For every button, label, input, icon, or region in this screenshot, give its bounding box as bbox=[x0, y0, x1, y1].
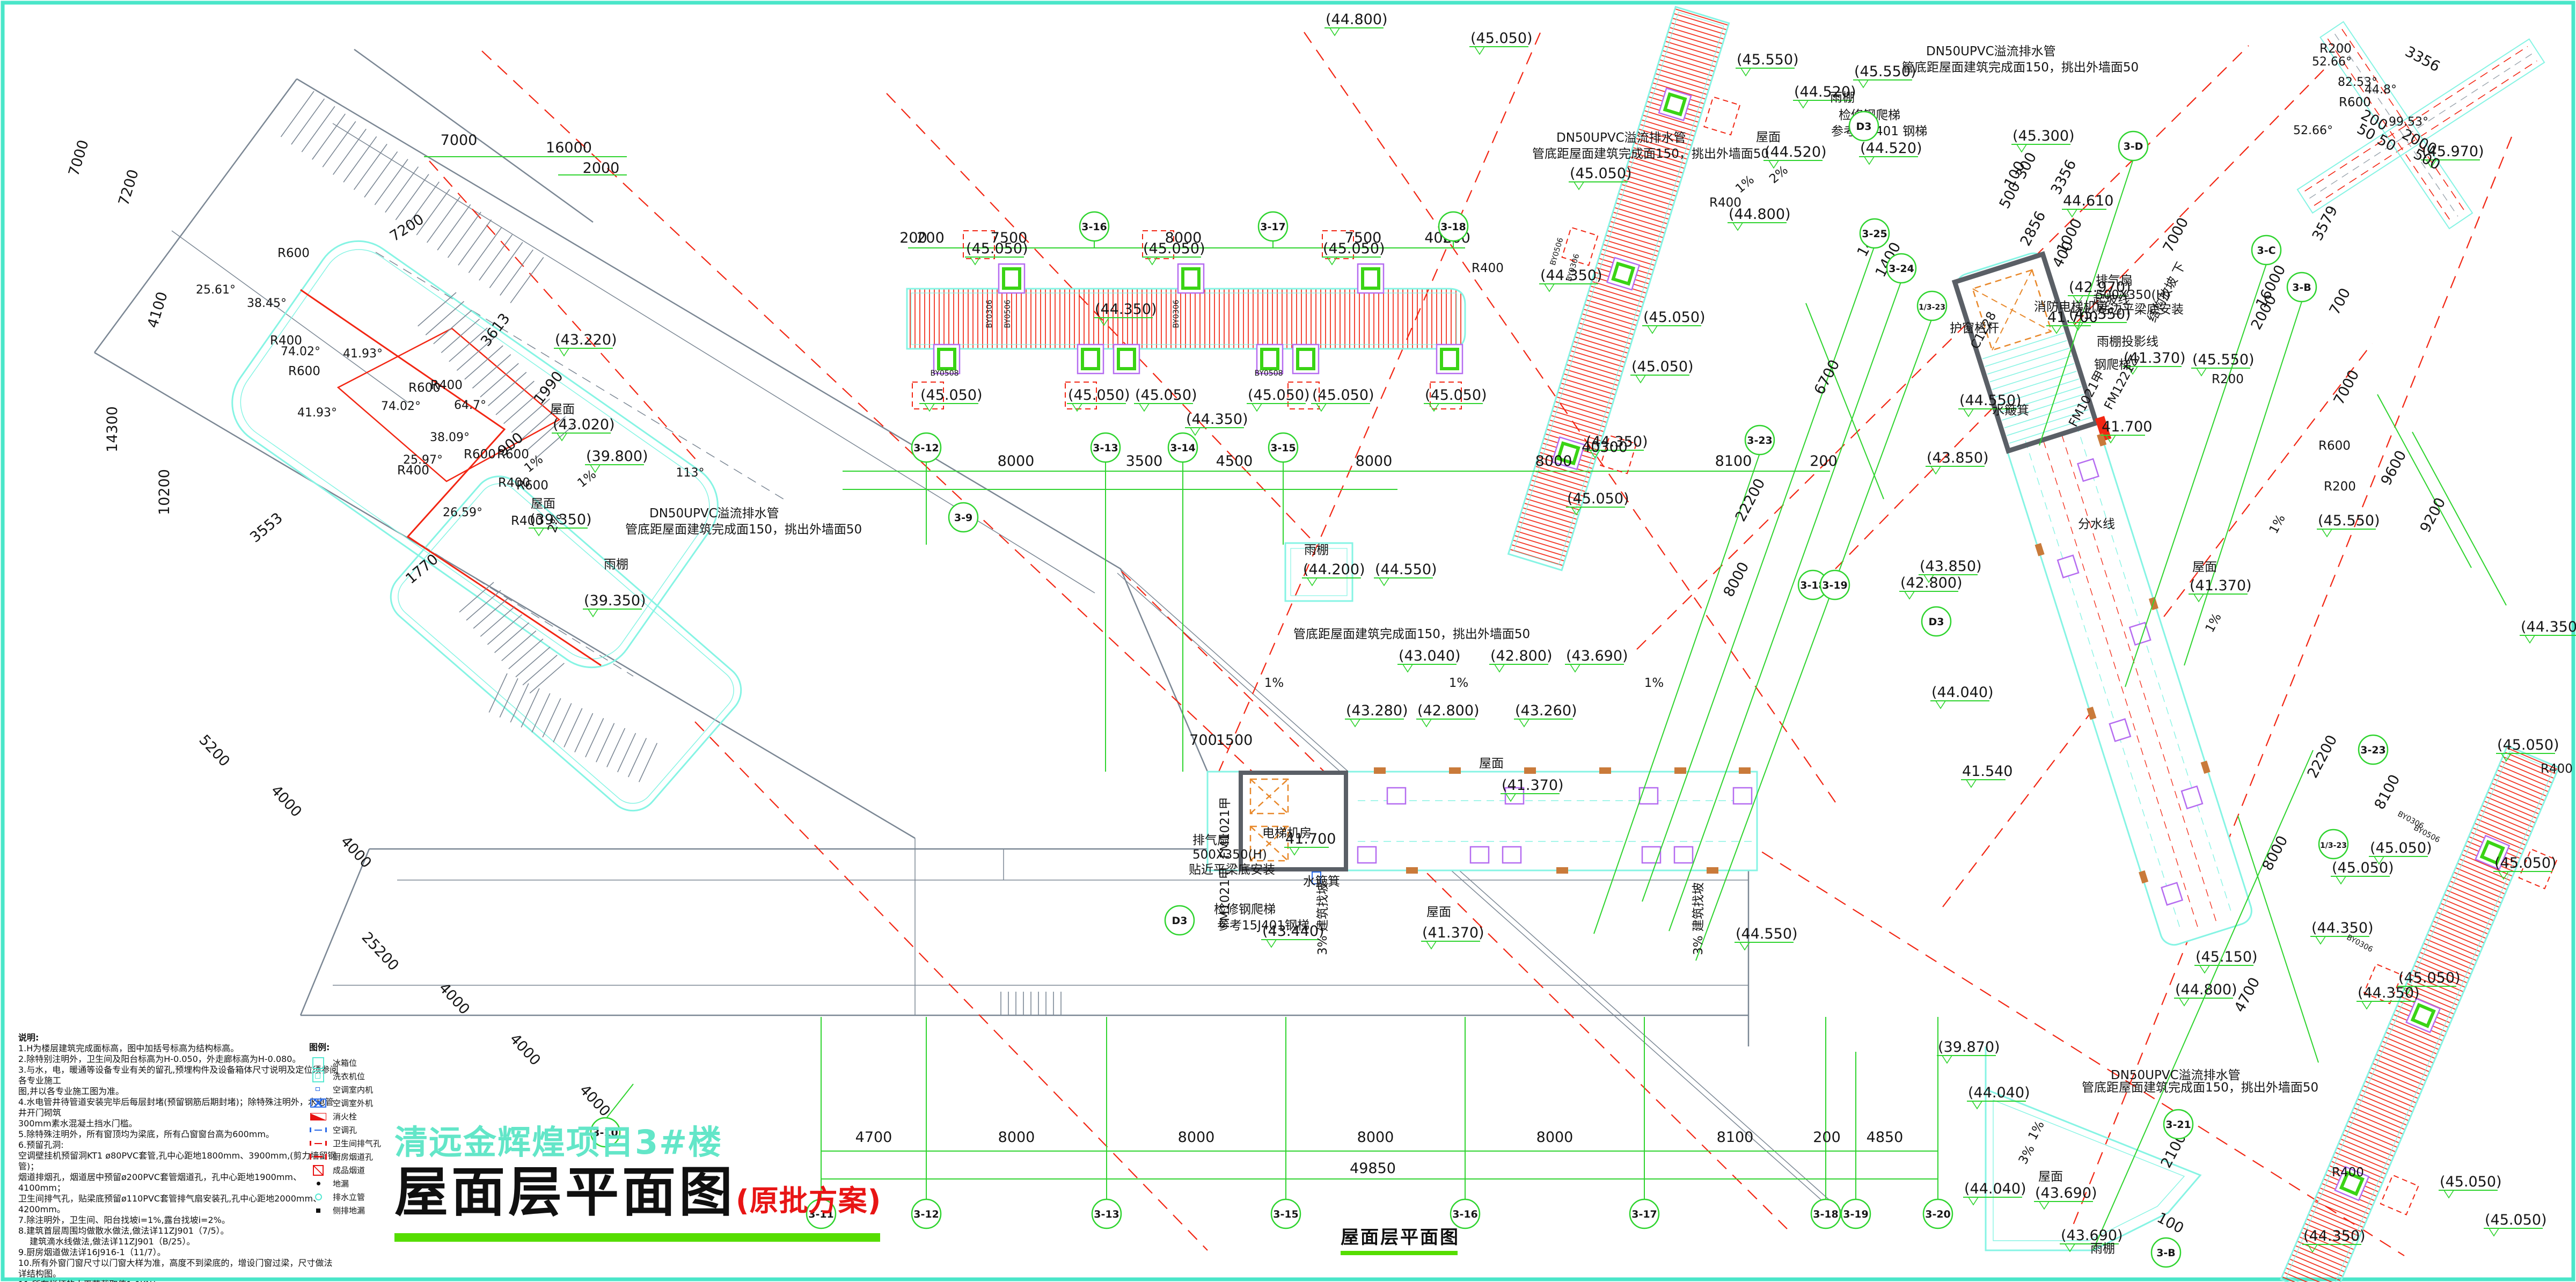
annotation-label: 排气扇 bbox=[2096, 274, 2133, 288]
drawing-title: 屋面层平面图(原批方案) bbox=[394, 1163, 881, 1230]
angle-label: 113° bbox=[676, 466, 705, 480]
annotation-label: 雨棚投影线 bbox=[2097, 335, 2158, 349]
dimension-label: 200 bbox=[917, 230, 945, 246]
elevation-label: (39.350) bbox=[584, 592, 646, 609]
annotation-label: 屋面 bbox=[1426, 905, 1451, 919]
title-underline-bar bbox=[394, 1233, 880, 1242]
sub-label-underline bbox=[1341, 1251, 1458, 1255]
grid-bubble-label: 3-20 bbox=[1925, 1208, 1951, 1220]
notes-heading: 说明: bbox=[18, 1032, 340, 1043]
dimension-label: 4850 bbox=[1867, 1129, 1904, 1146]
grid-bubble-label: 3-18 bbox=[1813, 1208, 1839, 1220]
elevation-label: (43.280) bbox=[1346, 702, 1408, 719]
radius-label: R600 bbox=[464, 448, 496, 461]
radius-label: R400 bbox=[1709, 196, 1741, 210]
grid-bubble-label: 3-16 bbox=[1081, 221, 1107, 233]
elevation-label: (44.800) bbox=[1326, 11, 1388, 28]
annotation-label: 管底距屋面建筑完成面150，挑出外墙面50 bbox=[1293, 627, 1530, 641]
note-line: 1.H为楼层建筑完成面标高，图中加括号标高为结构标高。 bbox=[18, 1043, 340, 1054]
annotation-label: 管底距屋面建筑完成面150，挑出外墙面50 bbox=[1902, 61, 2139, 75]
radius-label: R200 bbox=[2324, 480, 2356, 494]
dimension-label: 8000 bbox=[1536, 1129, 1574, 1146]
dimension-label: 100 bbox=[2154, 1210, 2186, 1237]
dimension-label: 25200 bbox=[358, 929, 402, 974]
note-line: 卫生间排气孔，贴梁底预留ø110PVC套管排气扇安装孔,孔中心距地2000mm、… bbox=[18, 1193, 340, 1215]
elevation-label: (43.690) bbox=[1566, 648, 1628, 664]
elevation-label: (41.370) bbox=[1502, 777, 1564, 794]
elevation-label: (44.520) bbox=[1860, 140, 1922, 157]
legend-heading: 图例: bbox=[309, 1040, 486, 1053]
annotation-label: 屋面 bbox=[531, 497, 555, 511]
annotation-label: 管底距屋面建筑完成面150，挑出外墙面50 bbox=[2082, 1081, 2318, 1095]
grid-bubble-label: 3-15 bbox=[1270, 442, 1296, 454]
annotation-label: DN50UPVC溢流排水管 bbox=[1926, 45, 2056, 58]
slope-label: 2% bbox=[1767, 163, 1791, 186]
legend-item-label: 地漏 bbox=[333, 1178, 349, 1189]
dimension-label: 2000 bbox=[2248, 292, 2280, 332]
dimension-label: 9600 bbox=[2378, 448, 2410, 488]
grid-bubble-label: 3-25 bbox=[1862, 228, 1887, 240]
dimension-label: 9200 bbox=[2417, 495, 2449, 535]
dimension-label: 4500 bbox=[1216, 453, 1253, 470]
elevation-label: (44.800) bbox=[2175, 981, 2237, 998]
elevation-label: (45.550) bbox=[2192, 351, 2255, 368]
drain-symbol-icon bbox=[317, 1182, 320, 1185]
grid-bubble-label: 3-12 bbox=[913, 1208, 939, 1220]
note-line: 10.所有外窗门窗尺寸以门窗大样为准，高度不到梁底的，增设门窗过梁，尺寸做法详结… bbox=[18, 1258, 340, 1279]
angle-label: 38.09° bbox=[430, 431, 470, 444]
elevation-label: (44.350) bbox=[1095, 301, 1157, 318]
slope-label: 3% 建筑找坡 bbox=[1316, 882, 1330, 955]
roof-plan-canvas: (45.050)(45.050)(45.050)(44.350)(45.050)… bbox=[0, 0, 2576, 1282]
grid-bubble-label: 3-C bbox=[2257, 245, 2275, 257]
annotation-label: 管底距屋面建筑完成面150，挑出外墙面50 bbox=[1532, 147, 1769, 161]
angle-label: 52.66° bbox=[2293, 124, 2333, 137]
flue-symbol-icon bbox=[313, 1165, 324, 1176]
dimension-label: 2856 bbox=[2017, 208, 2050, 248]
dimension-label: 5200 bbox=[195, 732, 233, 770]
slope-label: 1% bbox=[1644, 676, 1664, 690]
slope-label: 1% bbox=[2203, 611, 2224, 634]
annotation-label: 雨棚 bbox=[1304, 543, 1329, 557]
grid-bubble-label: D3 bbox=[1856, 121, 1872, 133]
flue-id-label: BY0508 bbox=[930, 369, 958, 378]
annotation-label: 屋面 bbox=[2192, 560, 2217, 574]
legend-item: 空调室内机 bbox=[309, 1083, 486, 1096]
slope-label: 3% bbox=[2016, 1142, 2038, 1166]
elevation-label: (44.550) bbox=[1736, 926, 1798, 942]
dimension-label: 7500 bbox=[991, 230, 1028, 246]
annotation-label: 雨棚 bbox=[1830, 91, 1855, 105]
radius-label: R200 bbox=[2319, 42, 2352, 56]
legend-item-label: 成品烟道 bbox=[333, 1164, 365, 1176]
angle-label: 38.45° bbox=[247, 297, 287, 310]
grid-bubble-label: 3-23 bbox=[2360, 744, 2386, 756]
dimension-label: 700 bbox=[1189, 732, 1217, 749]
acin-symbol-icon bbox=[311, 1087, 325, 1093]
note-line: 8.建筑首层周围均做散水做法,做法详11ZJ901（7/5）。 bbox=[18, 1226, 340, 1236]
dimension-label: 3579 bbox=[2309, 203, 2341, 243]
grid-bubble-label: 3-D bbox=[2124, 141, 2143, 152]
legend-item: 空调室外机 bbox=[309, 1096, 486, 1110]
dimension-label: 8000 bbox=[1357, 1129, 1394, 1146]
elevation-label: (45.050) bbox=[1631, 358, 1694, 375]
dimension-label: 49850 bbox=[1350, 1160, 1396, 1177]
annotation-label: 屋面 bbox=[1479, 757, 1504, 771]
radius-label: R200 bbox=[2212, 372, 2244, 386]
elevation-label: (45.050) bbox=[2485, 1212, 2547, 1228]
dimension-label: 500 bbox=[1996, 179, 2024, 211]
dimension-label: 6700 bbox=[1811, 357, 1843, 397]
dimension-label: 8000 bbox=[2259, 833, 2292, 873]
radius-label: R600 bbox=[2339, 96, 2371, 109]
slope-label: 1% bbox=[1733, 173, 1757, 196]
annotation-label: 分水线 bbox=[2078, 517, 2115, 531]
elevation-label: (43.040) bbox=[1399, 648, 1461, 664]
grid-bubble-label: 3-21 bbox=[2165, 1119, 2191, 1131]
elevation-label: (45.050) bbox=[1312, 387, 1374, 404]
elevation-label: (45.550) bbox=[2318, 512, 2380, 529]
slope-label: 1% bbox=[2026, 1118, 2047, 1142]
legend-item-label: 洗衣机位 bbox=[333, 1071, 365, 1082]
angle-label: 99.53° bbox=[2389, 115, 2428, 129]
grid-bubble-label: 3-B bbox=[2156, 1247, 2176, 1259]
elevation-label: (43.020) bbox=[553, 416, 615, 433]
dimension-label: 16000 bbox=[546, 140, 592, 156]
dimension-label: 8000 bbox=[998, 1129, 1035, 1146]
radius-label: R600 bbox=[2318, 439, 2351, 453]
radius-label: R600 bbox=[277, 246, 310, 260]
elevation-label: 41.540 bbox=[1962, 763, 2012, 780]
legend-item-label: 冰箱位 bbox=[333, 1057, 357, 1068]
annotation-label: 雨棚 bbox=[604, 558, 628, 572]
annotation-label: 屋面 bbox=[2038, 1170, 2063, 1184]
legend-item-label: 消火栓 bbox=[333, 1111, 357, 1122]
dimension-label: 7000 bbox=[65, 138, 92, 178]
angle-label: 52.66° bbox=[2312, 55, 2352, 69]
legend-item: 洗衣机位 bbox=[309, 1069, 486, 1083]
elevation-label: (45.550) bbox=[1737, 52, 1799, 68]
hydrant-symbol-icon bbox=[310, 1113, 326, 1120]
annotation-label: 管底距屋面建筑完成面150，挑出外墙面50 bbox=[625, 523, 862, 537]
grid-bubble-label: 3-16 bbox=[1452, 1208, 1478, 1220]
elevation-label: 41.700 bbox=[2102, 419, 2152, 435]
grid-bubble-label: 3-19 bbox=[1822, 580, 1848, 591]
grid-bubble-label: 1/3-23 bbox=[2320, 841, 2347, 850]
dimension-label: 1500 bbox=[1216, 732, 1253, 749]
slope-label: 1% bbox=[1264, 676, 1284, 690]
dimension-label: 7000 bbox=[2331, 367, 2363, 407]
dimension-label: 8000 bbox=[1721, 559, 1753, 599]
annotation-label: 起坡线 bbox=[2093, 293, 2130, 307]
dimension-label: 22200 bbox=[1732, 476, 1769, 524]
elevation-label: (44.520) bbox=[1765, 144, 1827, 160]
annotation-label: 水簸箕 bbox=[1303, 875, 1340, 889]
elevation-label: (45.050) bbox=[1643, 309, 1706, 326]
radius-label: R400 bbox=[397, 464, 429, 478]
elevation-label: (45.150) bbox=[2196, 949, 2258, 965]
dimension-label: 200 bbox=[1813, 1129, 1841, 1146]
angle-label: 41.93° bbox=[297, 406, 337, 420]
achole-symbol-icon bbox=[310, 1127, 327, 1132]
dimension-label: 8100 bbox=[1717, 1129, 1754, 1146]
br-strip-flues bbox=[2288, 811, 2557, 1220]
dimension-label: 8000 bbox=[1178, 1129, 1215, 1146]
elevation-label: (44.350) bbox=[2311, 920, 2374, 936]
annotation-label: 参考15J401钢梯 bbox=[1217, 919, 1309, 933]
elevation-label: (45.050) bbox=[1570, 165, 1632, 182]
legend-item-label: 空调室外机 bbox=[333, 1097, 373, 1109]
angle-label: 64.7° bbox=[454, 399, 486, 412]
sub-drawing-label-text: 屋面层平面图 bbox=[1341, 1227, 1460, 1248]
riser-symbol-icon bbox=[315, 1193, 322, 1200]
grid-bubble-label: 3-9 bbox=[954, 512, 972, 524]
dimension-label: 8000 bbox=[1356, 453, 1393, 470]
dimension-label: 3553 bbox=[247, 510, 286, 546]
dimension-label: 4000 bbox=[267, 782, 305, 821]
annotation-label: 护窗栏杆 bbox=[1950, 321, 1999, 335]
note-line: 300mm素水混凝土挡水门槛。 bbox=[18, 1118, 340, 1129]
grid-bubble-label: D3 bbox=[1929, 616, 1944, 628]
dimension-label: 10200 bbox=[156, 469, 173, 515]
elevation-label: (41.370) bbox=[2190, 577, 2252, 594]
washer-symbol-icon bbox=[312, 1071, 324, 1082]
dimension-label: 700 bbox=[2326, 285, 2354, 318]
radius-label: R400 bbox=[2332, 1166, 2364, 1180]
dimension-label: 8100 bbox=[1715, 453, 1752, 470]
radius-label: R400 bbox=[511, 514, 543, 528]
radius-label: R400 bbox=[2541, 762, 2573, 776]
dimension-label: 14300 bbox=[104, 406, 121, 452]
grid-bubble-label: 3-23 bbox=[1747, 435, 1773, 446]
radius-label: R600 bbox=[288, 364, 320, 378]
grid-bubble-label: 3-15 bbox=[1273, 1208, 1299, 1220]
dimension-label: 7000 bbox=[441, 132, 478, 149]
angle-label: 74.02° bbox=[381, 400, 421, 413]
flue-id-label: BY0306 bbox=[985, 299, 994, 328]
elevation-label: (42.800) bbox=[1900, 575, 1963, 591]
dimension-label: 8100 bbox=[2372, 772, 2404, 812]
dimension-label: 1770 bbox=[402, 551, 442, 588]
grid-bubble-label: 3-B bbox=[2292, 282, 2311, 294]
elevation-label: (44.040) bbox=[1964, 1181, 2026, 1197]
radius-label: R600 bbox=[408, 381, 441, 395]
grid-bubble-label: 3-24 bbox=[1889, 263, 1914, 275]
elevation-label: (43.260) bbox=[1515, 702, 1577, 719]
annotation-label: 水簸箕 bbox=[1992, 404, 2029, 417]
scheme-label: (原批方案) bbox=[736, 1184, 881, 1218]
elevation-label: (45.050) bbox=[2332, 860, 2394, 876]
legend-item: 冰箱位 bbox=[309, 1056, 486, 1069]
elevation-label: (45.050) bbox=[2494, 855, 2557, 871]
annotation-label: DN50UPVC溢流排水管 bbox=[649, 507, 779, 521]
dimension-label: 3613 bbox=[478, 310, 514, 349]
flue-id-label: BY0506 bbox=[1004, 299, 1012, 328]
dimension-label: 7200 bbox=[115, 167, 142, 208]
drawing-title-text: 屋面层平面图 bbox=[394, 1161, 736, 1224]
elevation-label: (42.800) bbox=[1417, 702, 1480, 719]
dimension-label: 8000 bbox=[998, 453, 1035, 470]
annotation-label: 检修钢爬梯 bbox=[1214, 903, 1276, 917]
elevation-label: (44.350) bbox=[1186, 411, 1248, 428]
acout-symbol-icon bbox=[310, 1098, 326, 1108]
grid-bubble-label: 3-13 bbox=[1094, 1208, 1119, 1220]
flue-id-label: BY0506 bbox=[1549, 237, 1565, 266]
angle-label: 44.8° bbox=[2365, 83, 2397, 97]
dimension-label: 7500 bbox=[1345, 230, 1382, 246]
elevation-label: (45.050) bbox=[2370, 840, 2432, 856]
dimension-label: 3500 bbox=[1126, 453, 1163, 470]
diagonal-corridor-strip bbox=[1509, 7, 1729, 570]
dimension-label: 8000 bbox=[1535, 453, 1572, 470]
dimension-label: 7000 bbox=[2160, 215, 2192, 255]
slope-label: 1% bbox=[575, 467, 599, 490]
grid-bubble-label: 3-17 bbox=[1260, 221, 1286, 233]
elevation-label: (43.850) bbox=[1920, 558, 1982, 575]
elevation-label: (45.050) bbox=[2497, 737, 2559, 753]
grid-bubble-label: 3-14 bbox=[1170, 442, 1196, 454]
annotation-label: DN50UPVC溢流排水管 bbox=[1556, 131, 1686, 145]
grid-bubble-label: 3-17 bbox=[1631, 1208, 1657, 1220]
legend-item-label: 排水立管 bbox=[333, 1191, 365, 1203]
elevation-label: (45.300) bbox=[2012, 128, 2075, 144]
angle-label: 26.59° bbox=[443, 506, 482, 519]
slope-label: 3% 建筑找坡 bbox=[1692, 882, 1706, 955]
dimension-label: 4000 bbox=[506, 1031, 544, 1069]
elevation-label: (43.690) bbox=[2035, 1185, 2097, 1202]
dimension-label: 8000 bbox=[1165, 230, 1202, 246]
elevation-label: (43.220) bbox=[555, 332, 617, 348]
radius-label: R600 bbox=[497, 448, 529, 461]
elevation-label: (45.050) bbox=[1567, 490, 1629, 507]
annotation-label: 钢爬梯 bbox=[2094, 358, 2131, 372]
angle-label: 41.93° bbox=[343, 347, 383, 361]
elevation-label: (44.350) bbox=[2521, 619, 2576, 635]
dimension-label: 2000 bbox=[583, 160, 620, 177]
elevation-label: (44.200) bbox=[1303, 561, 1365, 578]
elevation-label: (45.050) bbox=[2440, 1174, 2502, 1190]
center-building-strip bbox=[1207, 767, 1757, 884]
note-line: 4.水电管井待管道安装完毕后每层封堵(预留钢筋后期封堵)；除特殊注明外，水电管井… bbox=[18, 1097, 340, 1118]
elevation-label: (43.850) bbox=[1927, 450, 1989, 466]
grid-bubble-label: 3-18 bbox=[1440, 221, 1466, 233]
dimension-label: 4100 bbox=[144, 290, 171, 330]
legend-item-label: 厨房烟道孔 bbox=[333, 1151, 373, 1162]
elevation-label: (44.040) bbox=[1968, 1085, 2030, 1101]
elevation-label: (44.040) bbox=[1931, 684, 1994, 701]
annotation-label: FM1021甲 bbox=[1218, 797, 1232, 859]
grid-bubble-label: D3 bbox=[1172, 915, 1188, 927]
note-line: 9.厨房烟道做法详16J916-1（11/7）。 bbox=[18, 1247, 340, 1258]
radius-label: R400 bbox=[498, 476, 530, 490]
dimension-label: 200 bbox=[1810, 453, 1838, 470]
flue-id-label: BY0508 bbox=[1254, 369, 1283, 378]
kflue-symbol-icon bbox=[310, 1154, 327, 1160]
note-line: 11.所有栏杆的水平荷载取值1.0KN/m。 bbox=[18, 1279, 340, 1282]
elevation-label: (42.800) bbox=[1490, 648, 1553, 664]
grid-bubble-label: 3-13 bbox=[1093, 442, 1118, 454]
legend-item-label: 卫生间排气孔 bbox=[333, 1138, 381, 1149]
angle-label: 25.61° bbox=[196, 283, 236, 297]
elevation-label: (45.050) bbox=[1135, 387, 1197, 404]
dimension-label: 7200 bbox=[387, 211, 427, 245]
fridge-symbol-icon bbox=[312, 1057, 324, 1069]
notes-block: 说明: 1.H为楼层建筑完成面标高，图中加括号标高为结构标高。2.除特别注明外，… bbox=[18, 1032, 340, 1282]
dimension-label: 3356 bbox=[2402, 43, 2442, 76]
note-line: 烟道排烟孔，烟道居中预留ø200PVC套管烟道孔，孔中心距地1900mm、410… bbox=[18, 1172, 340, 1193]
elevation-label: (44.350) bbox=[2303, 1228, 2366, 1244]
elevation-label: (41.370) bbox=[1422, 925, 1484, 941]
elevation-label: (44.350) bbox=[2358, 985, 2420, 1001]
elevation-label: (44.550) bbox=[1375, 561, 1437, 578]
elevation-label: (45.050) bbox=[1425, 387, 1487, 404]
title-block: 清远金辉煌项目3#楼 屋面层平面图(原批方案) bbox=[394, 1115, 881, 1242]
elevation-label: (45.050) bbox=[920, 387, 983, 404]
slope-label: 1% bbox=[2267, 512, 2288, 536]
dimension-label: 3356 bbox=[2048, 157, 2080, 197]
annotation-label: 屋面 bbox=[1756, 130, 1781, 144]
grid-bubble-label: 1/3-23 bbox=[1919, 303, 1945, 312]
annotation-label: 电梯机房 bbox=[1262, 826, 1312, 840]
note-line: 2.除特别注明外，卫生间及阳台标高为H-0.050，外走廊标高为H-0.080。 bbox=[18, 1054, 340, 1065]
note-line: 建筑滴水线做法,做法详11ZJ901（B/25）。 bbox=[18, 1236, 340, 1247]
radius-label: R400 bbox=[270, 334, 302, 348]
annotation-label: 屋面 bbox=[550, 402, 575, 416]
elevation-label: (39.800) bbox=[586, 448, 648, 465]
dimension-label: 4000 bbox=[576, 1082, 613, 1120]
elevation-label: 44.610 bbox=[2063, 193, 2113, 209]
dimension-label: 40300 bbox=[1582, 439, 1628, 456]
elevation-label: (45.050) bbox=[1068, 387, 1130, 404]
annotation-label: 雨棚 bbox=[2090, 1242, 2115, 1256]
tvent-symbol-icon bbox=[310, 1141, 327, 1146]
grid-bubble-label: 3-19 bbox=[1843, 1208, 1869, 1220]
elevation-label: (45.050) bbox=[1470, 30, 1533, 47]
slope-label: 1% bbox=[1449, 676, 1469, 690]
note-line: 3.与水，电，暖通等设备专业有关的留孔,预埋构件及设备箱体尺寸说明及定位须参阅各… bbox=[18, 1065, 340, 1086]
elevation-label: (45.050) bbox=[2398, 970, 2461, 986]
note-line: 7.除注明外，卫生间、阳台找坡i=1%,露台找坡i=2%。 bbox=[18, 1215, 340, 1226]
radius-label: R400 bbox=[1472, 261, 1504, 275]
legend-item-label: 空调室内机 bbox=[333, 1084, 373, 1095]
sdrain-symbol-icon bbox=[316, 1208, 320, 1213]
sub-drawing-label: 屋面层平面图 bbox=[1341, 1222, 1460, 1255]
note-line: 图,并以各专业施工图为准。 bbox=[18, 1086, 340, 1097]
elevation-label: (45.050) bbox=[1248, 387, 1310, 404]
note-line: 6.预留孔洞: bbox=[18, 1140, 340, 1151]
grid-bubble-label: 3-12 bbox=[913, 442, 939, 454]
legend-item-label: 侧排地漏 bbox=[333, 1205, 365, 1216]
annotation-label: 参考15J401 钢梯 bbox=[1831, 124, 1927, 138]
flue-id-label: BY0306 bbox=[1172, 299, 1181, 328]
legend-item-label: 空调孔 bbox=[333, 1124, 357, 1136]
dimension-label: 4000 bbox=[337, 833, 375, 871]
elevation-label: (39.870) bbox=[1938, 1039, 2000, 1056]
note-line: 空调壁挂机预留洞KT1 ø80PVC套管,孔中心距地1800mm、3900mm,… bbox=[18, 1151, 340, 1172]
project-title: 清远金辉煌项目3#楼 bbox=[394, 1115, 881, 1163]
note-line: 5.除特殊注明外，所有窗顶均为梁底，所有凸窗窗台高为600mm。 bbox=[18, 1129, 340, 1140]
